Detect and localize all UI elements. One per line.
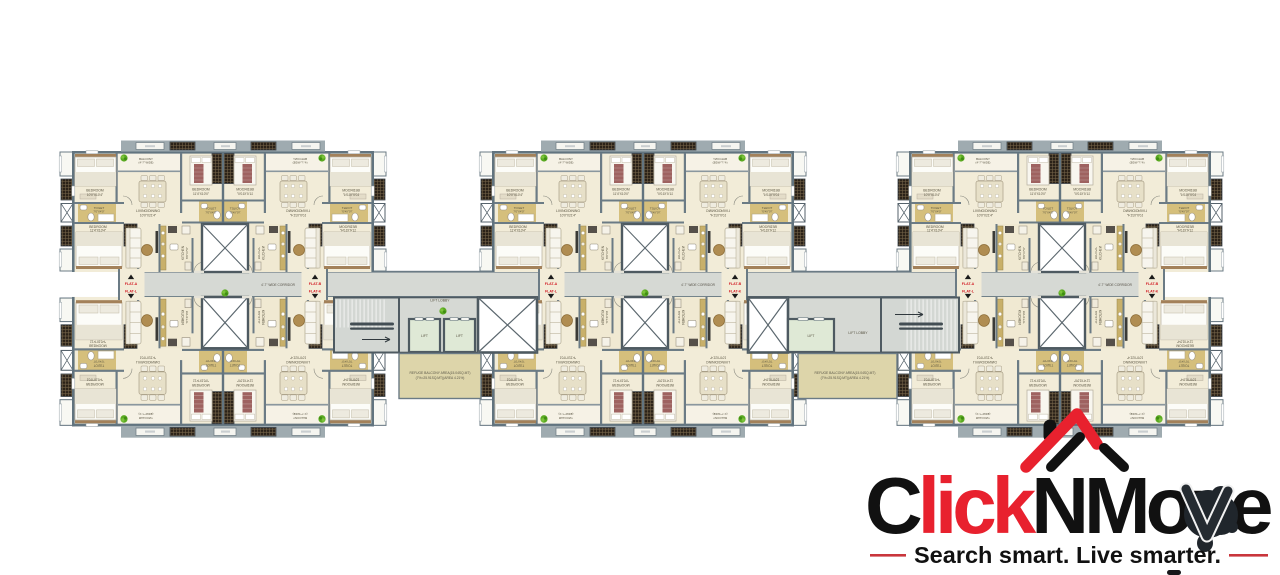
svg-text:REFUGE BALCONY AREA(15.04SQ.MT: REFUGE BALCONY AREA(15.04SQ.MT): [410, 371, 471, 375]
svg-text:Search smart. Live smarter.: Search smart. Live smarter.: [914, 542, 1221, 568]
svg-text:(7%=25.91SQ.MT)(AREA 4.21%): (7%=25.91SQ.MT)(AREA 4.21%): [416, 376, 465, 380]
svg-text:LIFT LOBBY: LIFT LOBBY: [430, 299, 450, 303]
svg-text:LIFT LOBBY: LIFT LOBBY: [848, 331, 868, 335]
svg-text:REFUGE BALCONY AREA(15.04SQ.MT: REFUGE BALCONY AREA(15.04SQ.MT): [815, 371, 876, 375]
svg-text:(7%=25.91SQ.MT)(AREA 4.21%): (7%=25.91SQ.MT)(AREA 4.21%): [821, 376, 870, 380]
svg-text:LIFT: LIFT: [808, 334, 815, 338]
